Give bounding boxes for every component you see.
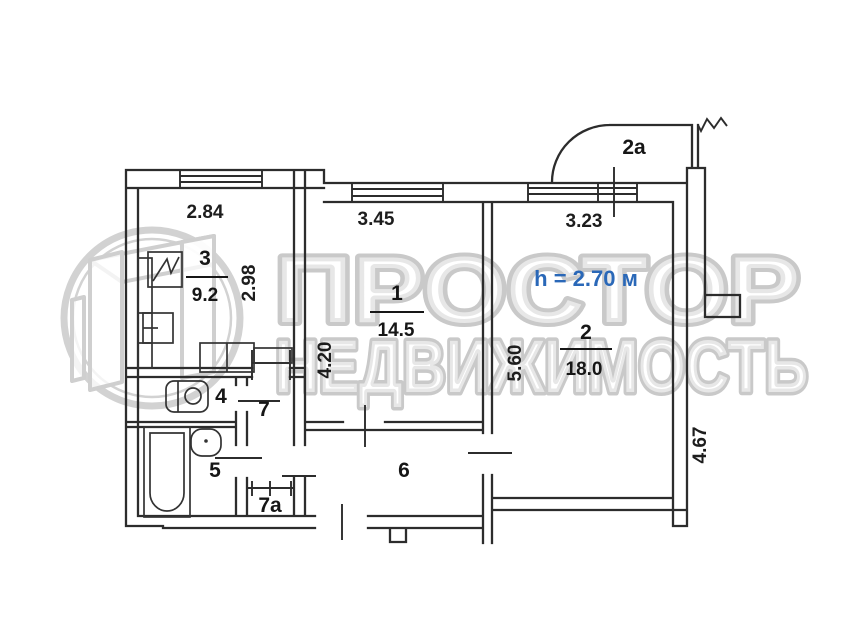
- room5-number: 5: [209, 459, 221, 482]
- room2-window-hatch: [528, 182, 637, 201]
- room1-area: 14.5: [378, 320, 415, 341]
- room3-number: 3: [199, 247, 211, 270]
- room3-area: 9.2: [192, 285, 218, 306]
- floor-plan-page: ПРОСТОР НЕДВИЖИМОСТЬ: [0, 0, 858, 633]
- windows: [180, 170, 637, 202]
- room2-area: 18.0: [566, 359, 603, 380]
- dim-room1-depth: 4.20: [315, 342, 336, 379]
- room7a-number: 7a: [258, 494, 282, 517]
- watermark-glyph-tab: [72, 297, 84, 381]
- dim-room2-depth: 5.60: [505, 345, 526, 382]
- balcony-railing-mark: [698, 118, 727, 131]
- dim-kitchen-depth: 2.98: [239, 265, 260, 302]
- balcony-number: 2a: [622, 136, 646, 159]
- floor-plan-drawing: ПРОСТОР НЕДВИЖИМОСТЬ: [0, 0, 858, 633]
- room2-number: 2: [580, 321, 592, 344]
- dim-kitchen-width: 2.84: [187, 202, 224, 223]
- room4-number: 4: [215, 385, 227, 408]
- room1-number: 1: [391, 282, 403, 305]
- room1-window-hatch: [352, 183, 443, 202]
- ceiling-height-label: h = 2.70 м: [534, 266, 638, 291]
- room6-number: 6: [398, 459, 410, 482]
- watermark-brand-line2: НЕДВИЖИМОСТЬ: [275, 325, 808, 408]
- bathtub-icon: [144, 427, 190, 517]
- dim-room2-width: 3.23: [566, 211, 603, 232]
- room7-number: 7: [258, 398, 270, 421]
- kitchen-window-hatch: [180, 170, 262, 188]
- dim-room1-width: 3.45: [358, 209, 395, 230]
- dim-right-side: 4.67: [690, 427, 711, 464]
- watermark-glyph-left-pillar: [90, 252, 122, 390]
- sink-icon: [191, 429, 221, 456]
- fridge-icon: [143, 313, 173, 343]
